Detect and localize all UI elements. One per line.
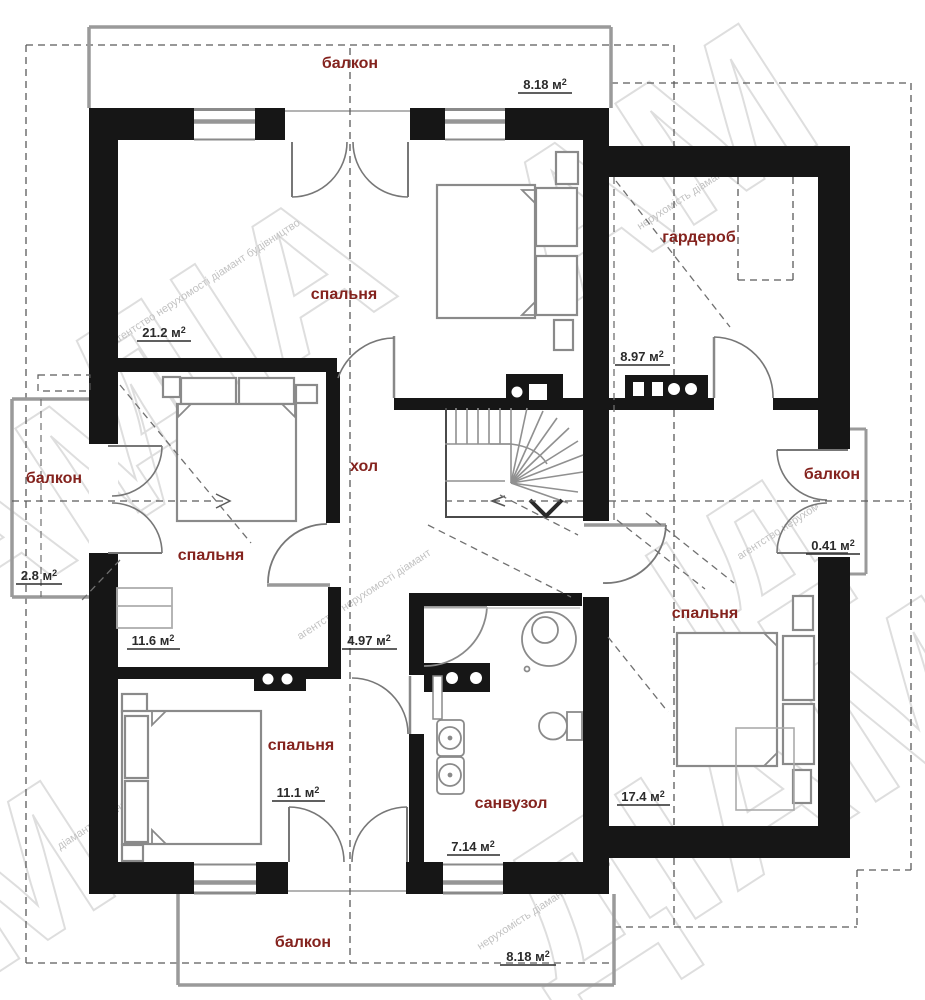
svg-text:11.6 м2: 11.6 м2 <box>132 633 175 648</box>
svg-text:гардероб: гардероб <box>662 229 736 246</box>
svg-text:4.97 м2: 4.97 м2 <box>347 633 391 648</box>
svg-text:спальня: спальня <box>268 737 334 754</box>
svg-text:17.4 м2: 17.4 м2 <box>621 789 665 804</box>
svg-text:2.8 м2: 2.8 м2 <box>21 568 57 583</box>
svg-text:балкон: балкон <box>275 934 331 951</box>
svg-text:21.2 м2: 21.2 м2 <box>142 325 186 340</box>
svg-text:хол: хол <box>350 458 378 475</box>
svg-text:7.14 м2: 7.14 м2 <box>451 839 495 854</box>
svg-text:8.97 м2: 8.97 м2 <box>620 349 664 364</box>
svg-text:спальня: спальня <box>311 286 377 303</box>
svg-text:0.41 м2: 0.41 м2 <box>811 538 855 553</box>
svg-text:спальня: спальня <box>178 547 244 564</box>
svg-text:санвузол: санвузол <box>475 795 548 812</box>
svg-text:8.18 м2: 8.18 м2 <box>506 949 550 964</box>
svg-text:8.18 м2: 8.18 м2 <box>523 77 567 92</box>
svg-text:11.1 м2: 11.1 м2 <box>277 785 320 800</box>
svg-text:балкон: балкон <box>26 470 82 487</box>
svg-text:балкон: балкон <box>804 466 860 483</box>
svg-text:спальня: спальня <box>672 605 738 622</box>
